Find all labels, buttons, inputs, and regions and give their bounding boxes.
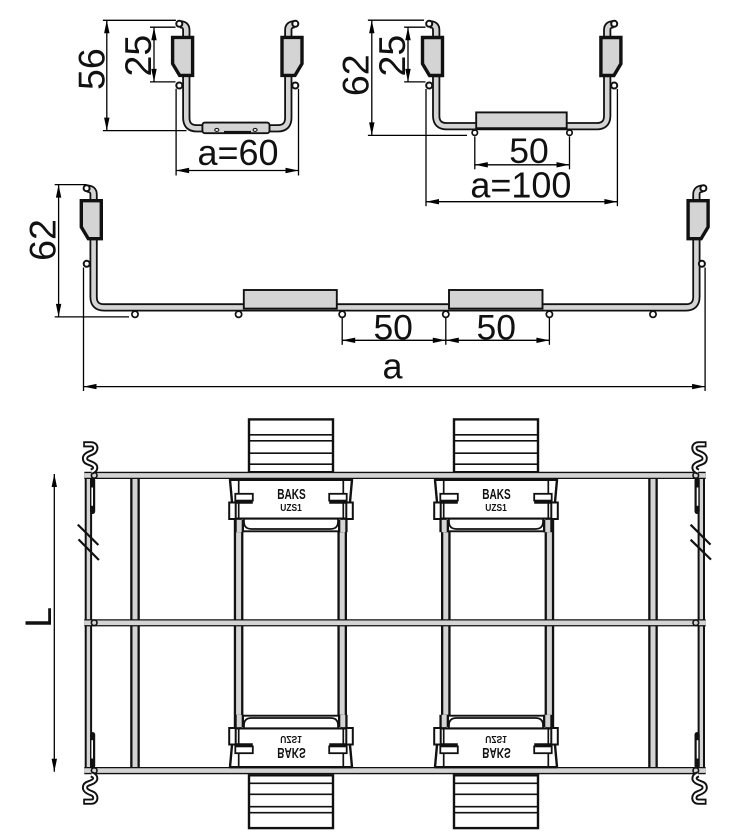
svg-text:a: a bbox=[382, 346, 403, 387]
svg-text:50: 50 bbox=[477, 308, 517, 348]
svg-text:25: 25 bbox=[371, 35, 413, 77]
svg-text:62: 62 bbox=[21, 219, 63, 261]
svg-text:a=60: a=60 bbox=[197, 132, 278, 173]
svg-text:56: 56 bbox=[70, 48, 112, 90]
svg-text:50: 50 bbox=[373, 308, 413, 348]
svg-text:L: L bbox=[17, 607, 59, 628]
svg-text:25: 25 bbox=[117, 35, 159, 77]
svg-text:a=100: a=100 bbox=[470, 164, 571, 205]
